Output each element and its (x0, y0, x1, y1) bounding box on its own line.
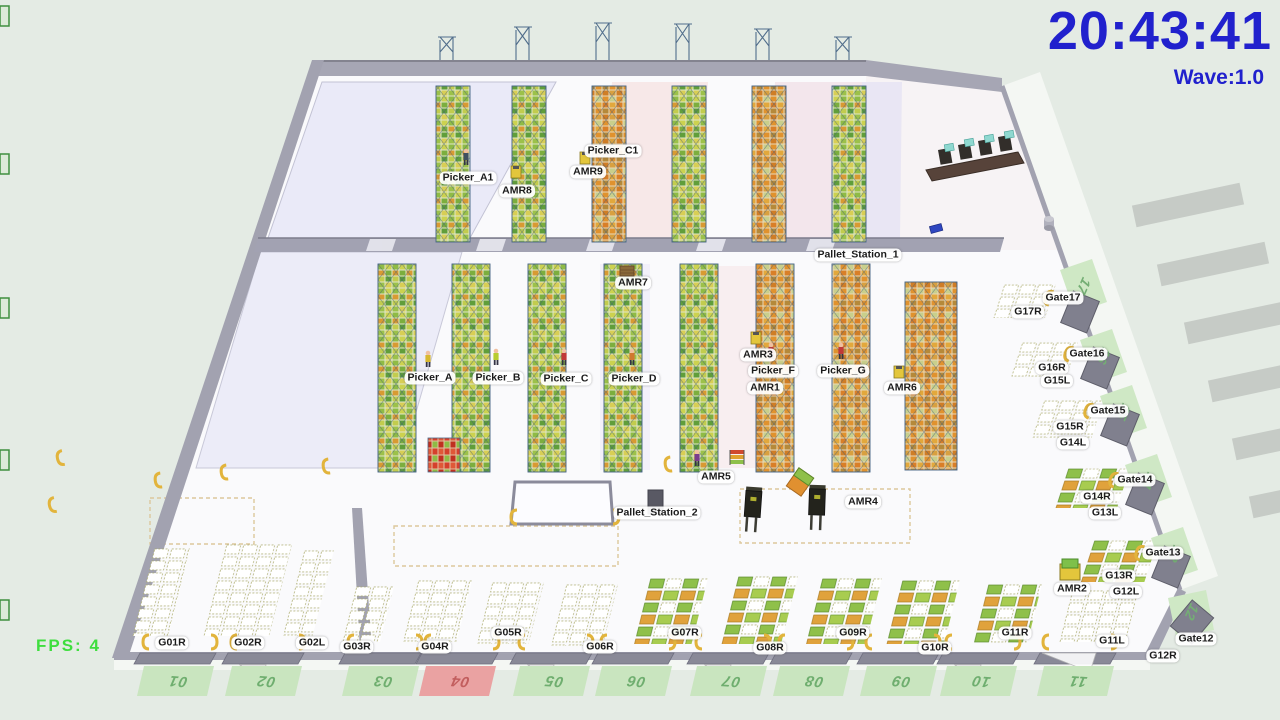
label-pallet-station-1: Pallet_Station_1 (814, 249, 901, 262)
label-g07r: G07R (668, 627, 701, 640)
ramp-number-04: 04 (449, 672, 471, 690)
ramp-number-06: 06 (625, 672, 647, 690)
label-g12r: G12R (1146, 650, 1179, 663)
label-picker-b: Picker_B (473, 372, 524, 385)
label-g15r: G15R (1053, 421, 1086, 434)
label-picker-d: Picker_D (609, 373, 660, 386)
ramp-number-07: 07 (720, 672, 742, 690)
label-g14l: G14L (1057, 437, 1089, 450)
label-gate17: Gate17 (1042, 292, 1083, 305)
label-amr3: AMR3 (740, 349, 776, 362)
ramp-number-10: 10 (970, 672, 992, 690)
fps-counter: FPS: 4 (36, 636, 101, 656)
label-g08r: G08R (753, 642, 786, 655)
label-g11r: G11R (999, 627, 1032, 640)
label-amr9: AMR9 (570, 166, 606, 179)
simulation-clock: 20:43:41 (1048, 0, 1272, 62)
label-g15l: G15L (1041, 375, 1073, 388)
label-picker-a1: Picker_A1 (440, 172, 497, 185)
label-g09r: G09R (836, 627, 869, 640)
label-amr2: AMR2 (1054, 583, 1090, 596)
gray-cylinder (1044, 216, 1054, 231)
label-gate14: Gate14 (1114, 474, 1155, 487)
label-gate12: Gate12 (1175, 633, 1216, 646)
label-g02r: G02R (231, 637, 264, 650)
label-g06r: G06R (583, 641, 616, 654)
label-g12l: G12L (1110, 586, 1142, 599)
rack-scaffolds (438, 23, 852, 66)
simulation-window: Picker_A1 AMR8 AMR9 Picker_C1 AMR7 Palle… (0, 0, 1280, 720)
ramp-number-03: 03 (372, 672, 394, 690)
label-picker-f: Picker_F (748, 365, 798, 378)
ramp-number-11: 11 (1067, 672, 1088, 690)
amr5-shelf (730, 450, 744, 465)
label-picker-c1: Picker_C1 (585, 145, 642, 158)
label-g03r: G03R (340, 641, 373, 654)
edge-markers (0, 6, 9, 620)
label-gate15: Gate15 (1087, 405, 1128, 418)
wave-indicator: Wave:1.0 (1174, 66, 1264, 90)
ramp-number-02: 02 (255, 672, 277, 690)
label-amr4: AMR4 (845, 496, 881, 509)
ramp-number-08: 08 (803, 672, 825, 690)
ramp-number-05: 05 (543, 672, 565, 690)
label-g17r: G17R (1011, 306, 1044, 319)
label-g13l: G13L (1089, 507, 1121, 520)
label-amr7: AMR7 (615, 277, 651, 290)
label-g14r: G14R (1080, 491, 1113, 504)
amr7-box (620, 266, 634, 276)
label-g13r: G13R (1102, 570, 1135, 583)
label-amr6: AMR6 (884, 382, 920, 395)
label-picker-a: Picker_A (405, 372, 456, 385)
label-g02l: G02L (296, 637, 328, 650)
label-g05r: G05R (491, 627, 524, 640)
label-g04r: G04R (418, 641, 451, 654)
label-amr8: AMR8 (499, 185, 535, 198)
label-pallet-station-2: Pallet_Station_2 (613, 507, 700, 520)
ramp-number-01: 01 (167, 672, 189, 690)
label-g16r: G16R (1035, 362, 1068, 375)
label-amr1: AMR1 (747, 382, 783, 395)
label-picker-c: Picker_C (541, 373, 592, 386)
ramp-number-09: 09 (890, 672, 912, 690)
label-gate13: Gate13 (1142, 547, 1183, 560)
label-amr5: AMR5 (698, 471, 734, 484)
label-g11l: G11L (1096, 635, 1128, 648)
dock-plates-bottom (134, 653, 1116, 664)
amr2-cargo (1060, 559, 1080, 580)
label-gate16: Gate16 (1066, 348, 1107, 361)
label-picker-g: Picker_G (817, 365, 869, 378)
label-g10r: G10R (918, 642, 951, 655)
rack-red-cluster (428, 438, 460, 472)
buffer-enclosure (511, 482, 613, 524)
label-g01r: G01R (155, 637, 188, 650)
